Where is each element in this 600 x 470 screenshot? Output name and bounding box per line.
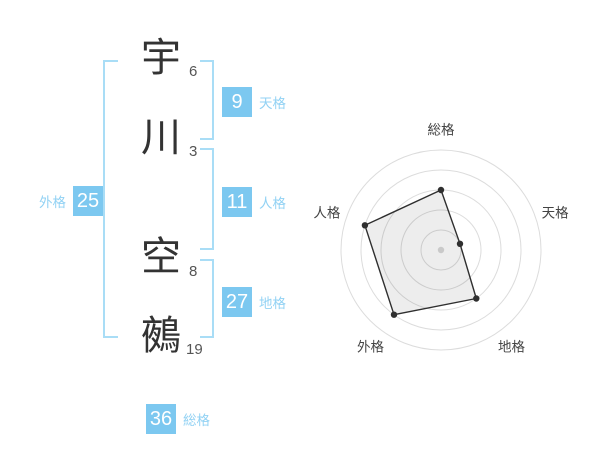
radar-vertex-dot bbox=[362, 222, 368, 228]
radar-vertex-dot bbox=[473, 295, 479, 301]
stroke-count-4: 19 bbox=[186, 342, 203, 357]
chikaku-label: 地格 bbox=[259, 292, 286, 312]
stroke-count-1: 6 bbox=[189, 64, 197, 79]
radar-axis-label: 外格 bbox=[357, 340, 384, 355]
name-character-1: 宇 bbox=[128, 38, 194, 78]
soukaku-label: 総格 bbox=[183, 409, 210, 429]
jinkaku-value-badge: 11 bbox=[222, 187, 252, 217]
gaikaku-group: 外格 25 bbox=[39, 186, 103, 216]
jinkaku-group: 11 人格 bbox=[222, 187, 286, 217]
chikaku-value-badge: 27 bbox=[222, 287, 252, 317]
tenkaku-value-badge: 9 bbox=[222, 87, 252, 117]
stroke-count-2: 3 bbox=[189, 144, 197, 159]
soukaku-group: 36 総格 bbox=[146, 404, 210, 434]
radar-vertex-dot bbox=[438, 187, 444, 193]
radar-vertex-dot bbox=[457, 241, 463, 247]
stroke-count-3: 8 bbox=[189, 264, 197, 279]
jinkaku-label: 人格 bbox=[259, 192, 286, 212]
radar-axis-label: 人格 bbox=[313, 205, 340, 220]
name-character-3: 空 bbox=[128, 237, 194, 277]
radar-polygon bbox=[365, 190, 476, 315]
soukaku-value-badge: 36 bbox=[146, 404, 176, 434]
bracket-surname-tenkaku bbox=[200, 60, 214, 140]
chikaku-group: 27 地格 bbox=[222, 287, 286, 317]
gaikaku-value-badge: 25 bbox=[73, 186, 103, 216]
radar-vertex-dot bbox=[391, 312, 397, 318]
bracket-middle-jinkaku bbox=[200, 148, 214, 250]
gaikaku-label: 外格 bbox=[39, 191, 66, 211]
radar-center-dot bbox=[438, 247, 444, 253]
bracket-full-name-gaikaku bbox=[103, 60, 118, 338]
name-analysis-page: 宇 川 空 鵺 6 3 8 19 9 天格 11 人格 27 地格 外格 25 … bbox=[0, 0, 600, 470]
radar-axis-label: 総格 bbox=[428, 123, 455, 138]
name-character-2: 川 bbox=[128, 118, 194, 158]
radar-axis-label: 天格 bbox=[542, 205, 570, 220]
name-character-4: 鵺 bbox=[128, 316, 194, 356]
tenkaku-label: 天格 bbox=[259, 92, 286, 112]
radar-axis-label: 地格 bbox=[498, 340, 526, 355]
tenkaku-group: 9 天格 bbox=[222, 87, 286, 117]
radar-chart: 総格天格地格外格人格 bbox=[290, 100, 592, 400]
bracket-givenname-chikaku bbox=[200, 259, 214, 338]
